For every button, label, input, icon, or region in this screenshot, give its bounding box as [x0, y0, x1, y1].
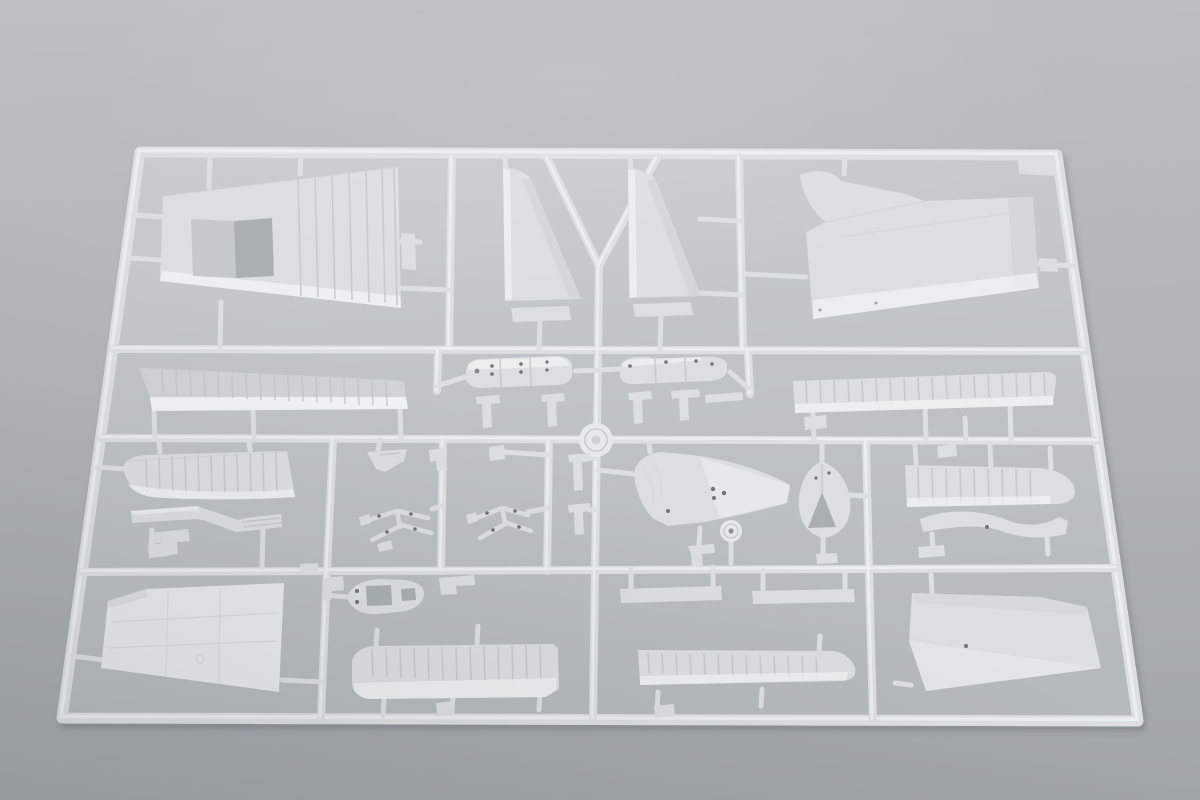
hatch-strip-left [352, 644, 559, 699]
wheel [720, 520, 742, 542]
corner-tab [1018, 158, 1057, 176]
wing-strip-right [905, 465, 1075, 507]
sprue-photo [0, 0, 1200, 800]
sprue [61, 150, 1138, 721]
float-half-right [620, 357, 727, 384]
center-disc [579, 423, 613, 457]
hatch-strip-right [638, 650, 855, 685]
float-half-left [466, 356, 572, 388]
hull-section-left [123, 451, 295, 499]
photo-stage [0, 0, 1200, 800]
